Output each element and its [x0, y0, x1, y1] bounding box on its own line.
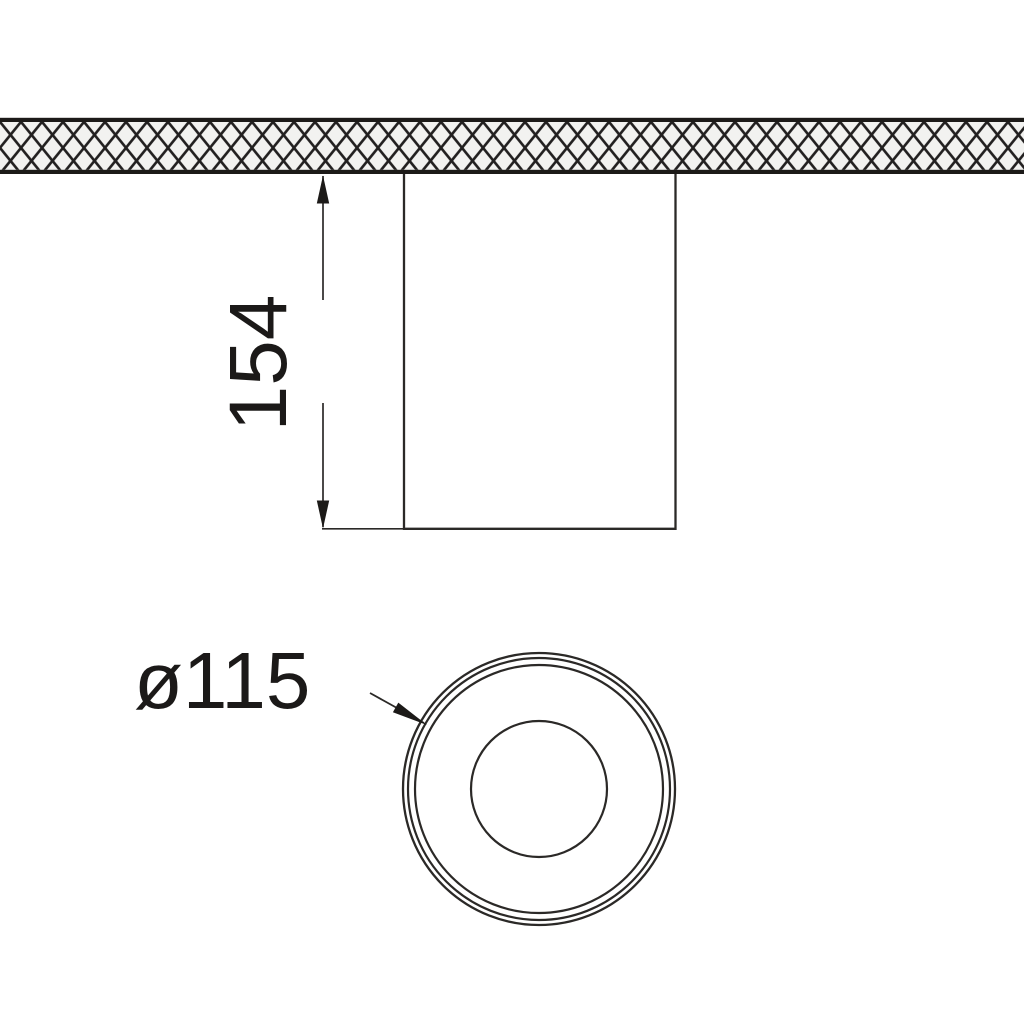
svg-text:ø115: ø115 — [134, 636, 310, 725]
svg-text:154: 154 — [213, 295, 304, 432]
